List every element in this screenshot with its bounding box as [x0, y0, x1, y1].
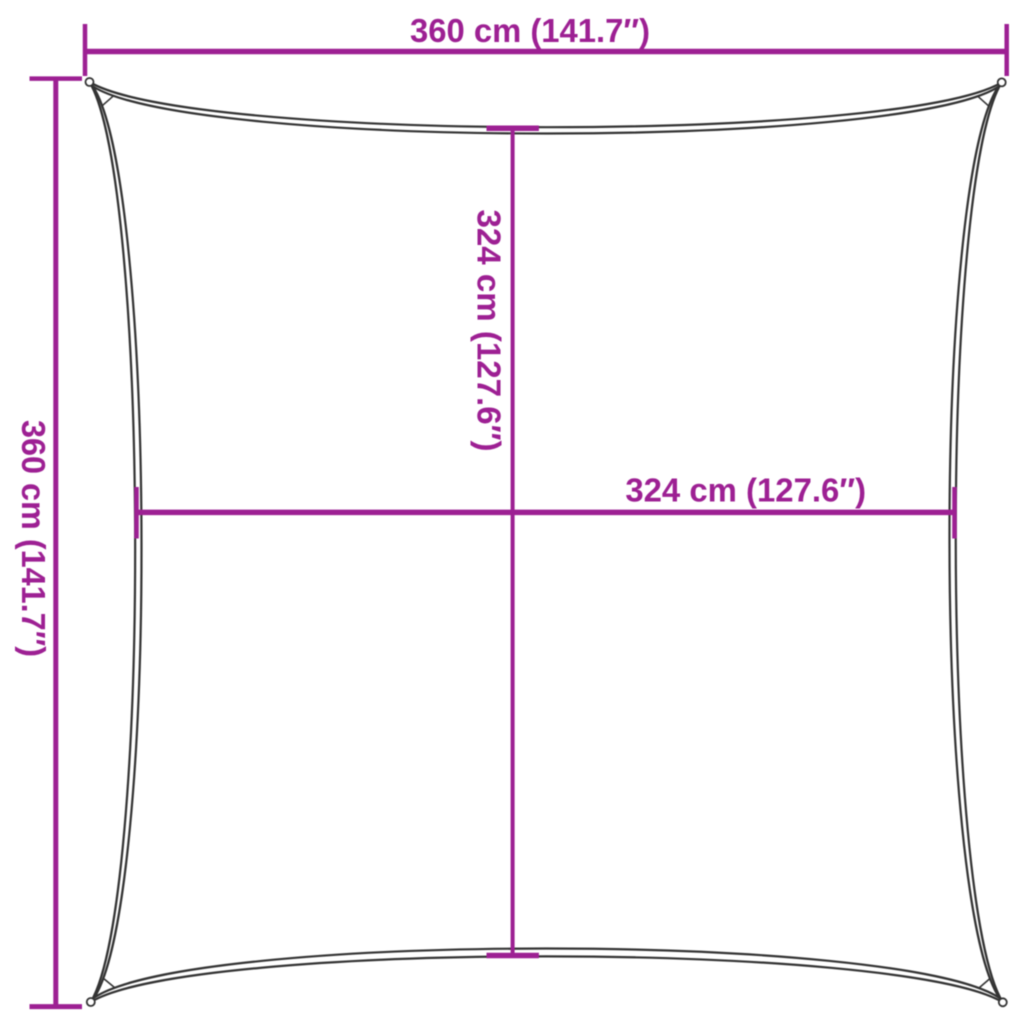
- svg-text:360 cm (141.7″): 360 cm (141.7″): [410, 13, 650, 50]
- svg-text:324 cm (127.6″): 324 cm (127.6″): [470, 210, 507, 452]
- svg-text:360 cm (141.7″): 360 cm (141.7″): [14, 420, 51, 657]
- svg-text:324 cm (127.6″): 324 cm (127.6″): [625, 473, 866, 510]
